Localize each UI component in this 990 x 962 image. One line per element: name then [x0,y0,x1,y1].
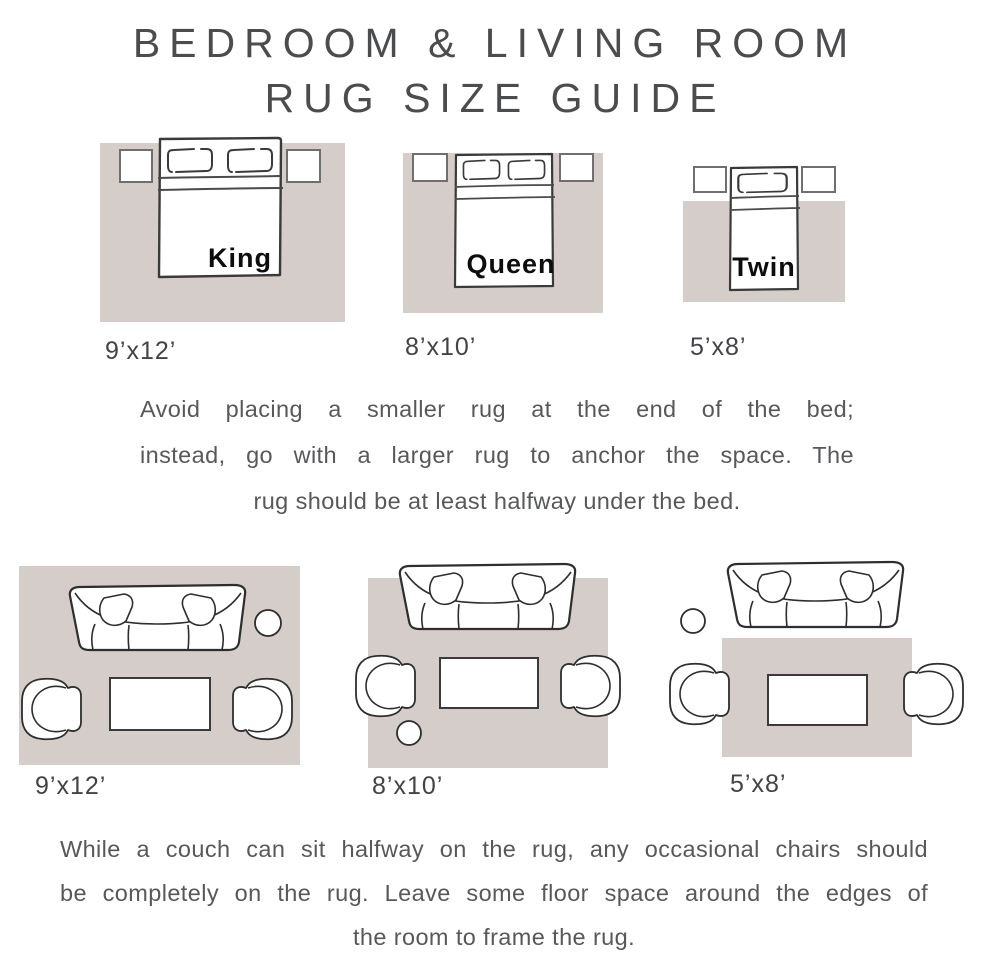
sofa-icon [400,564,575,629]
armchair-icon [22,679,81,740]
coffee-table-icon [110,678,210,730]
king-bedroom-diagram [92,133,354,333]
living-room-diagram-9x12 [10,558,325,773]
bed-size-name: Twin [704,252,824,283]
rug-size-label: 9’x12’ [35,772,106,801]
sofa-icon [70,585,245,650]
armchair-icon [670,664,729,725]
bed-size-name: Queen [451,249,571,280]
page-title-line1: BEDROOM & LIVING ROOM [0,16,990,71]
queen-bedroom-diagram [395,133,610,323]
side-table-icon [255,610,281,636]
armchair-icon [356,656,415,717]
rug-size-guide-infographic: BEDROOM & LIVING ROOM RUG SIZE GUIDE Kin… [0,0,990,962]
rug-size-label: 8’x10’ [372,772,443,801]
rug-size-label: 8’x10’ [405,333,476,362]
nightstand-icon [694,167,726,192]
bedroom-note: Avoid placing a smaller rug at the end o… [140,386,854,524]
page-title-line2: RUG SIZE GUIDE [0,71,990,126]
nightstand-icon [802,167,835,192]
nightstand-icon [560,154,593,181]
living-room-diagram-5x8 [655,548,987,783]
note-line: While a couch can sit halfway on the rug… [60,827,928,871]
twin-bedroom-diagram [668,133,868,323]
note-line: instead, go with a larger rug to anchor … [140,432,854,478]
nightstand-icon [413,154,447,181]
side-table-icon [397,721,421,745]
armchair-icon [233,679,292,740]
note-line: the room to frame the rug. [60,915,928,959]
note-line: Avoid placing a smaller rug at the end o… [140,386,854,432]
coffee-table-icon [440,658,538,708]
bed-size-name: King [180,243,300,274]
nightstand-icon [120,150,152,182]
page-title: BEDROOM & LIVING ROOM RUG SIZE GUIDE [0,16,990,126]
rug-size-label: 5’x8’ [730,770,786,799]
note-line: be completely on the rug. Leave some flo… [60,871,928,915]
living-room-diagram-8x10 [340,548,635,783]
nightstand-icon [287,150,320,182]
side-table-icon [681,609,705,633]
sofa-icon [728,562,903,627]
coffee-table-icon [768,675,867,725]
rug-size-label: 5’x8’ [690,333,746,362]
rug-size-label: 9’x12’ [105,337,176,366]
note-line: rug should be at least halfway under the… [140,478,854,524]
armchair-icon [904,664,963,725]
living-room-note: While a couch can sit halfway on the rug… [60,827,928,959]
armchair-icon [561,656,620,717]
